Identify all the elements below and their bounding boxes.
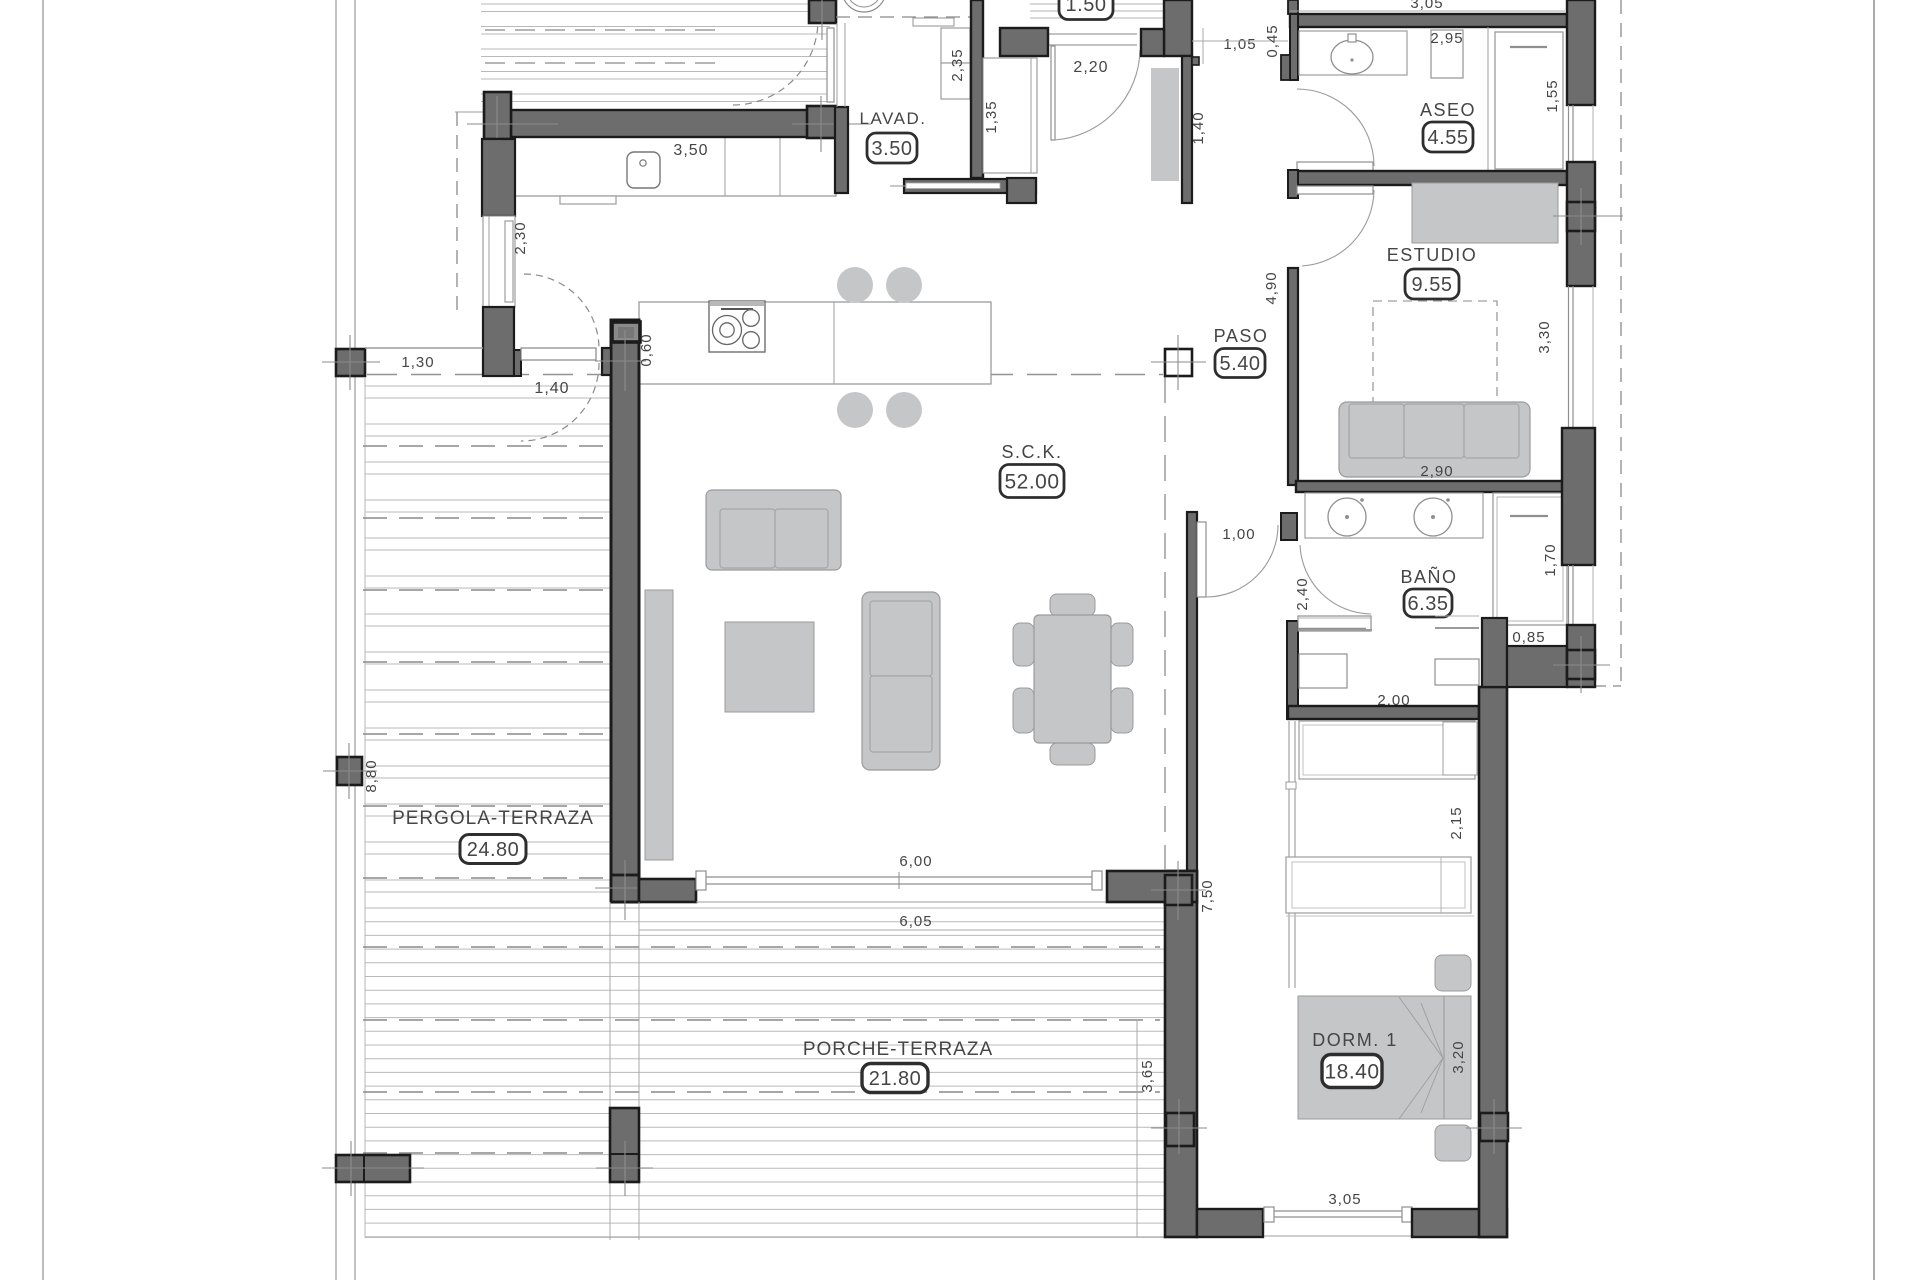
svg-text:1,40: 1,40 bbox=[1190, 111, 1207, 144]
svg-text:1,00: 1,00 bbox=[1222, 526, 1255, 543]
svg-text:S.C.K.: S.C.K. bbox=[1001, 442, 1062, 462]
svg-text:1,30: 1,30 bbox=[401, 354, 434, 371]
svg-text:2,15: 2,15 bbox=[1448, 806, 1465, 839]
svg-text:PASO: PASO bbox=[1214, 326, 1269, 346]
svg-text:9.55: 9.55 bbox=[1412, 274, 1453, 296]
svg-text:2,40: 2,40 bbox=[1294, 577, 1311, 610]
svg-text:2,30: 2,30 bbox=[512, 221, 529, 254]
svg-text:ASEO: ASEO bbox=[1420, 100, 1476, 120]
svg-text:PERGOLA-TERRAZA: PERGOLA-TERRAZA bbox=[392, 808, 594, 829]
svg-text:52.00: 52.00 bbox=[1004, 470, 1059, 493]
svg-text:3,65: 3,65 bbox=[1139, 1059, 1156, 1092]
svg-text:3,30: 3,30 bbox=[1536, 320, 1553, 353]
svg-text:8,80: 8,80 bbox=[363, 759, 380, 792]
svg-text:BAÑO: BAÑO bbox=[1400, 566, 1457, 587]
svg-text:1,40: 1,40 bbox=[534, 380, 569, 397]
svg-text:4,90: 4,90 bbox=[1263, 271, 1280, 304]
svg-text:0,60: 0,60 bbox=[638, 333, 655, 366]
svg-text:2,35: 2,35 bbox=[949, 48, 966, 81]
svg-text:1,35: 1,35 bbox=[983, 100, 1000, 133]
svg-text:3.50: 3.50 bbox=[872, 138, 913, 160]
svg-text:3,50: 3,50 bbox=[673, 142, 708, 159]
svg-text:ESTUDIO: ESTUDIO bbox=[1387, 245, 1478, 265]
svg-text:2,95: 2,95 bbox=[1430, 30, 1463, 47]
svg-text:3,05: 3,05 bbox=[1410, 0, 1443, 12]
svg-text:LAVAD.: LAVAD. bbox=[860, 109, 927, 128]
svg-text:DORM. 1: DORM. 1 bbox=[1312, 1030, 1398, 1050]
svg-text:3,05: 3,05 bbox=[1328, 1191, 1361, 1208]
svg-text:0,85: 0,85 bbox=[1512, 629, 1545, 646]
svg-text:21.80: 21.80 bbox=[869, 1068, 922, 1090]
svg-text:1.50: 1.50 bbox=[1066, 0, 1107, 16]
svg-text:2,90: 2,90 bbox=[1420, 463, 1453, 480]
svg-text:3,20: 3,20 bbox=[1450, 1040, 1467, 1073]
svg-text:1,55: 1,55 bbox=[1544, 79, 1561, 112]
svg-text:6.35: 6.35 bbox=[1408, 593, 1449, 615]
svg-text:PORCHE-TERRAZA: PORCHE-TERRAZA bbox=[803, 1039, 993, 1060]
svg-text:7,50: 7,50 bbox=[1199, 879, 1216, 912]
svg-text:2,20: 2,20 bbox=[1073, 59, 1108, 76]
svg-text:18.40: 18.40 bbox=[1324, 1060, 1379, 1083]
svg-text:1,05: 1,05 bbox=[1223, 36, 1256, 53]
svg-text:24.80: 24.80 bbox=[467, 839, 520, 861]
svg-text:6,00: 6,00 bbox=[899, 853, 932, 870]
svg-text:1,70: 1,70 bbox=[1542, 543, 1559, 576]
svg-text:5.40: 5.40 bbox=[1220, 353, 1261, 375]
svg-text:0,45: 0,45 bbox=[1264, 24, 1281, 57]
svg-text:6,05: 6,05 bbox=[899, 913, 932, 930]
svg-text:4.55: 4.55 bbox=[1428, 127, 1469, 149]
